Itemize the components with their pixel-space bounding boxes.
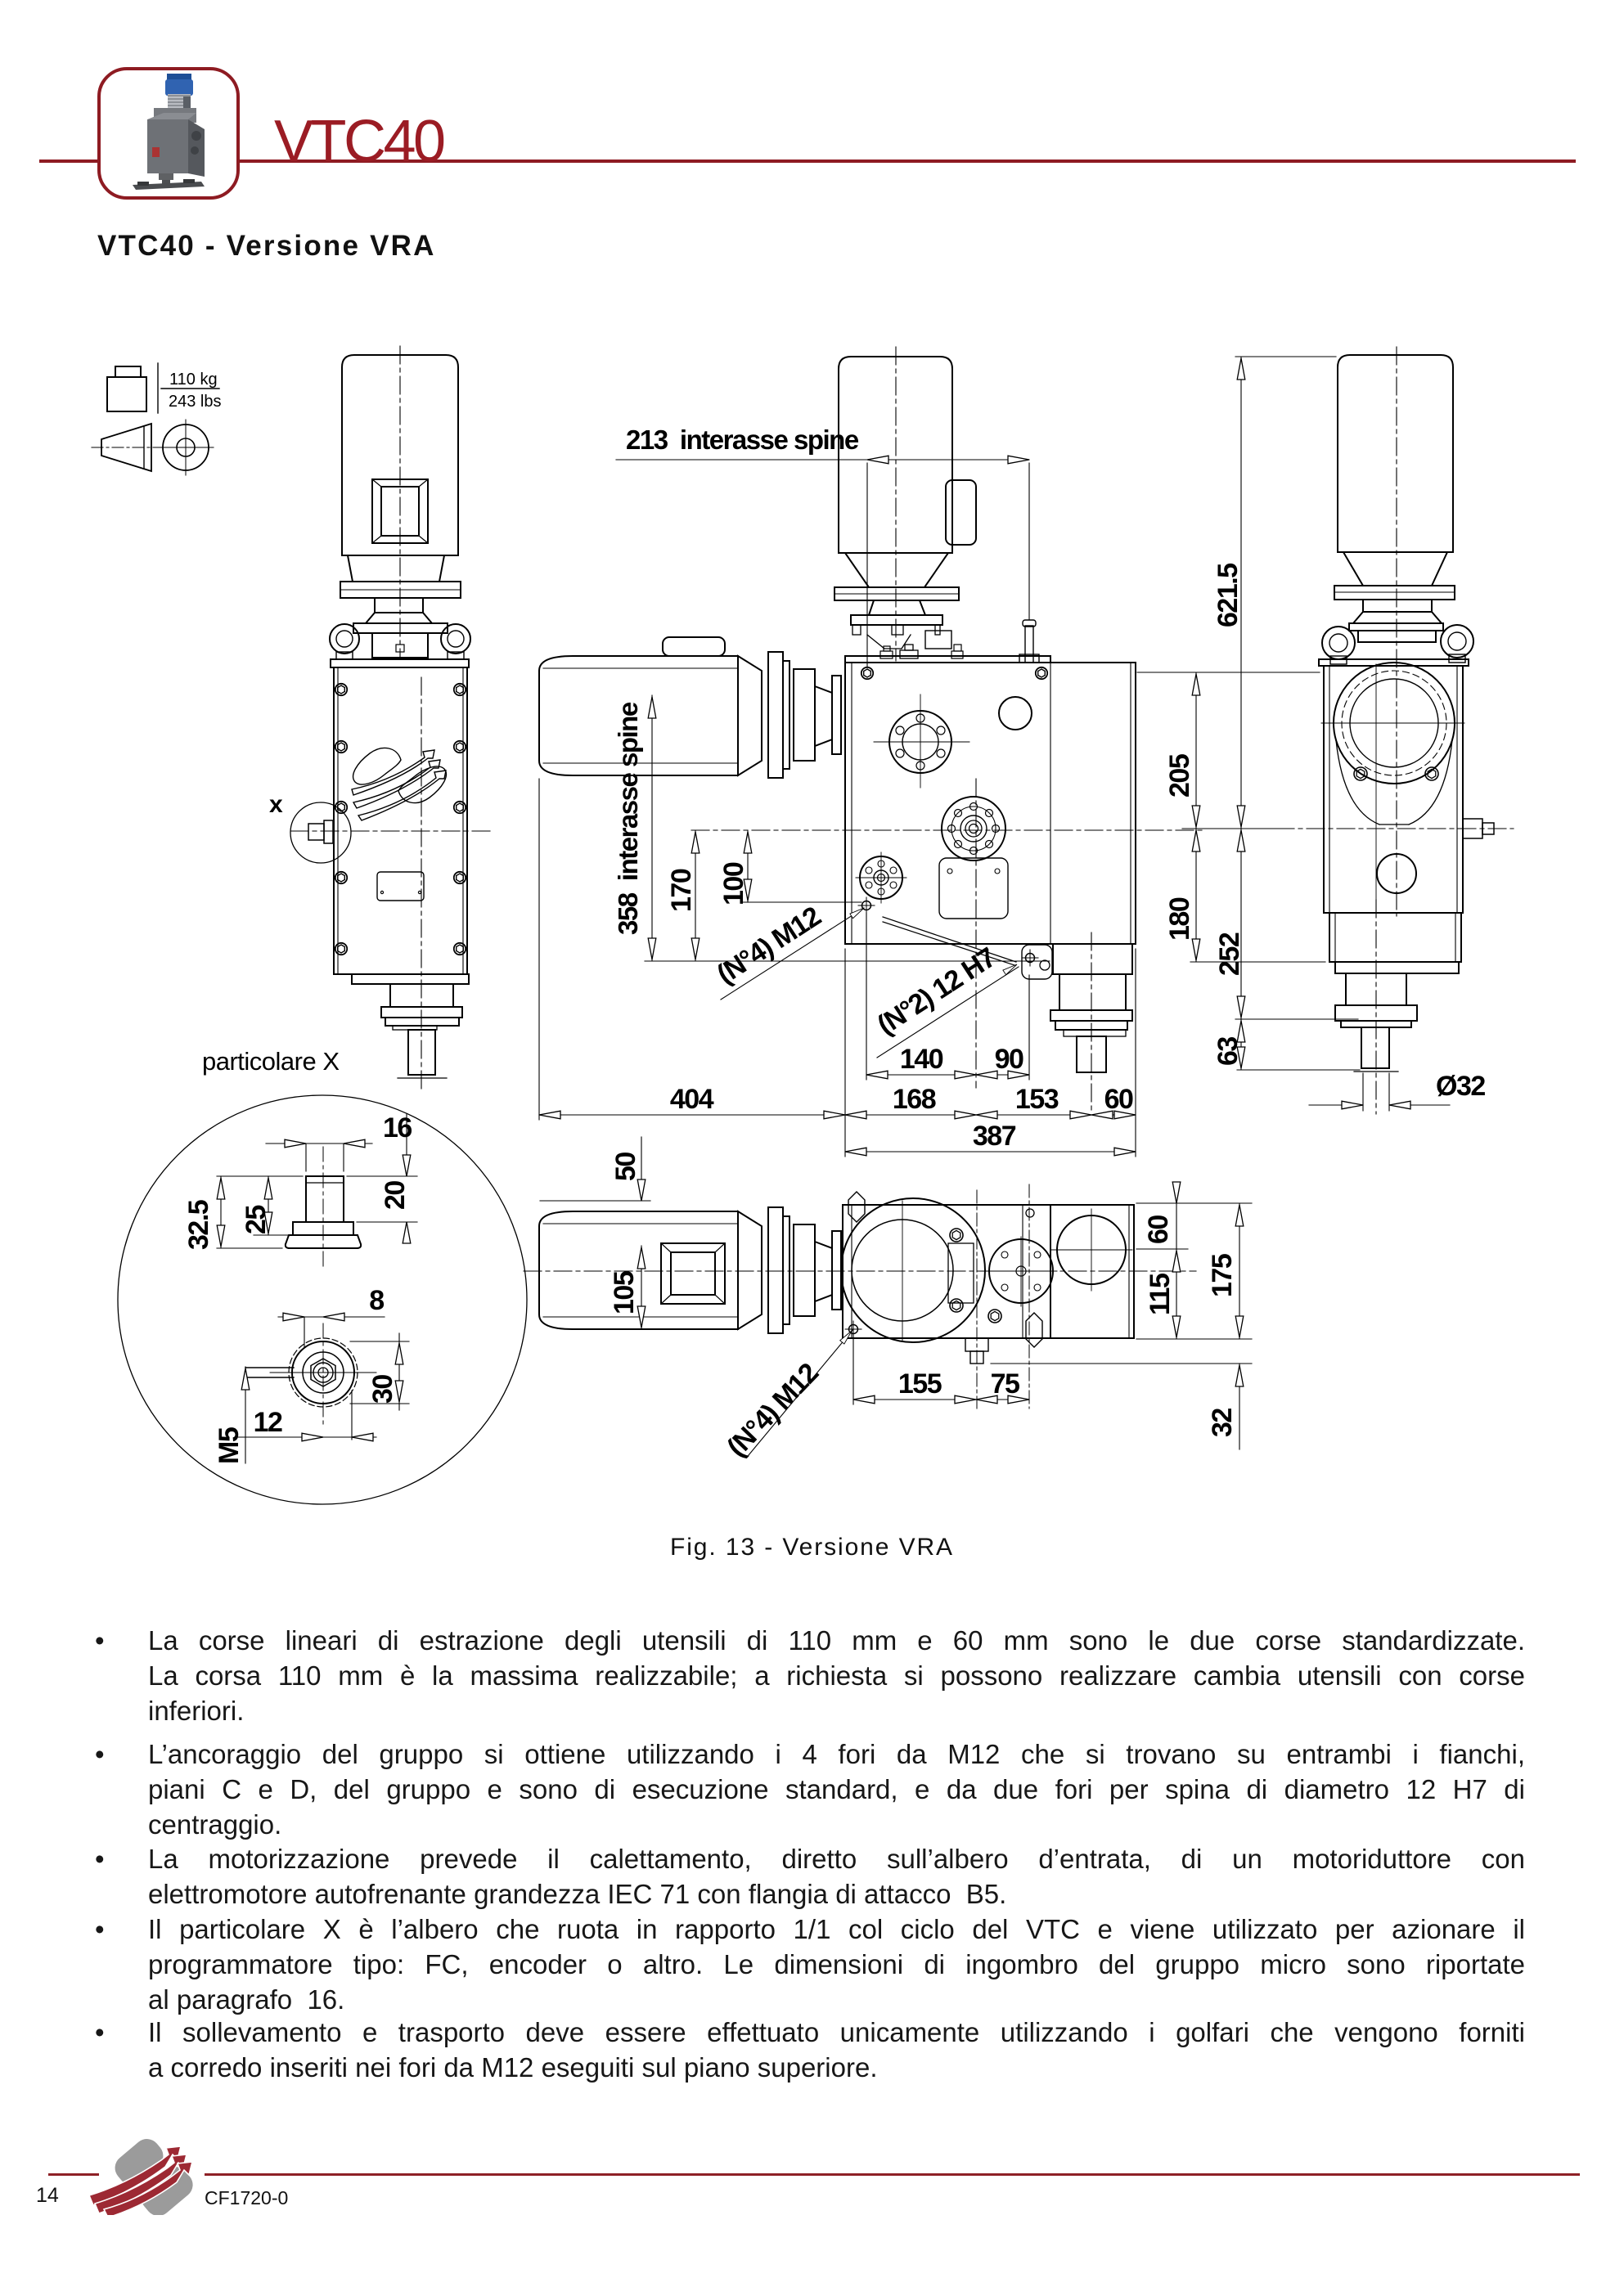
svg-text:153: 153	[1015, 1084, 1059, 1115]
svg-text:(N°4) M12: (N°4) M12	[721, 1358, 824, 1463]
svg-text:110 kg: 110 kg	[169, 371, 218, 389]
svg-text:155: 155	[898, 1368, 942, 1400]
svg-text:particolare X: particolare X	[202, 1047, 340, 1076]
svg-text:140: 140	[900, 1044, 943, 1075]
svg-text:63: 63	[1212, 1037, 1244, 1066]
svg-text:12: 12	[254, 1407, 282, 1438]
svg-text:100: 100	[718, 862, 749, 905]
svg-text:213 interasse spine: 213 interasse spine	[626, 425, 859, 455]
svg-text:30: 30	[367, 1375, 398, 1404]
svg-text:115: 115	[1145, 1274, 1176, 1315]
svg-text:60: 60	[1104, 1084, 1133, 1115]
svg-text:x: x	[269, 791, 283, 818]
svg-text:75: 75	[991, 1368, 1019, 1400]
svg-text:32: 32	[1207, 1409, 1238, 1437]
svg-text:621.5: 621.5	[1212, 564, 1244, 627]
svg-text:32.5: 32.5	[183, 1200, 214, 1250]
svg-text:170: 170	[666, 869, 697, 912]
svg-text:M5: M5	[214, 1427, 245, 1464]
svg-text:175: 175	[1207, 1254, 1238, 1297]
svg-text:252: 252	[1214, 932, 1245, 976]
svg-text:105: 105	[609, 1271, 640, 1314]
svg-text:50: 50	[610, 1152, 641, 1181]
svg-text:243 lbs: 243 lbs	[169, 393, 222, 411]
svg-text:20: 20	[380, 1181, 411, 1210]
svg-text:387: 387	[973, 1121, 1016, 1152]
svg-text:16: 16	[383, 1112, 412, 1144]
svg-text:Ø32: Ø32	[1436, 1071, 1485, 1102]
svg-text:8: 8	[369, 1285, 384, 1316]
svg-text:(N°4) M12: (N°4) M12	[712, 901, 826, 990]
svg-text:25: 25	[241, 1206, 272, 1234]
svg-text:180: 180	[1164, 897, 1195, 941]
svg-text:358 interasse spine: 358 interasse spine	[613, 702, 643, 935]
svg-text:168: 168	[893, 1084, 936, 1115]
svg-text:(N°2) 12 H7: (N°2) 12 H7	[872, 942, 1001, 1041]
svg-text:90: 90	[995, 1044, 1023, 1075]
svg-text:205: 205	[1164, 754, 1195, 798]
svg-text:60: 60	[1143, 1215, 1174, 1244]
svg-text:404: 404	[670, 1084, 714, 1115]
